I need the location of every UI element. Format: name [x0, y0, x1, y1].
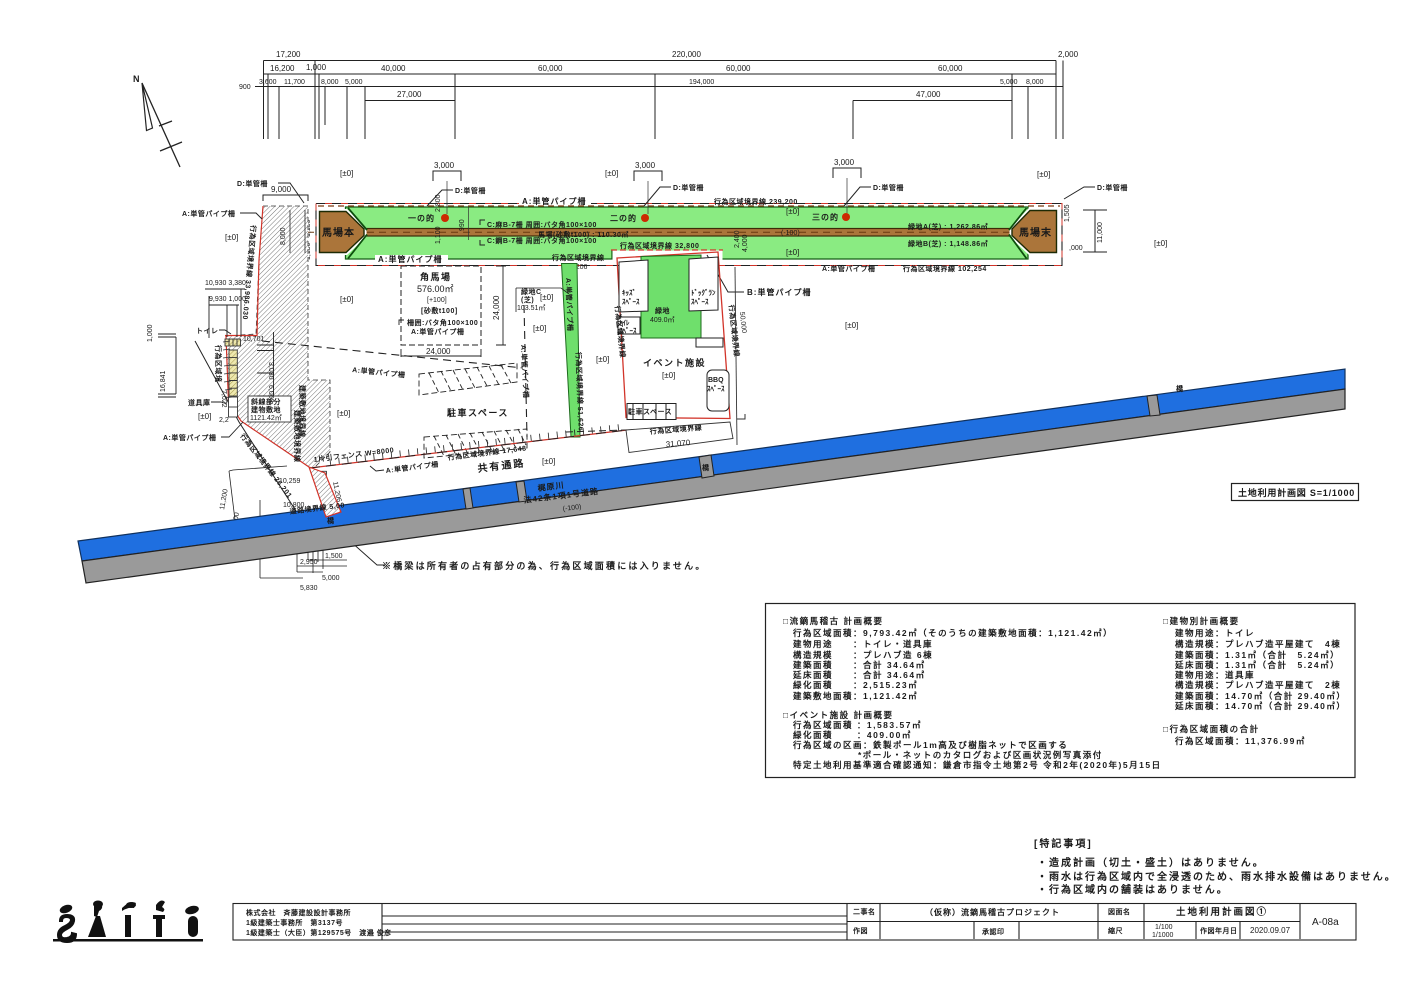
svg-text:[±0]: [±0]	[540, 293, 553, 302]
svg-text:[+100]: [+100]	[427, 297, 447, 304]
svg-text:[特記事項]: [特記事項]	[1034, 837, 1093, 850]
svg-text:□建物別計画概要: □建物別計画概要	[1163, 616, 1240, 626]
svg-text:BBQ: BBQ	[708, 377, 724, 384]
svg-text:A-08a: A-08a	[1312, 917, 1339, 928]
svg-text:[砂敷t100]: [砂敷t100]	[421, 306, 458, 315]
svg-text:9,930 1,000: 9,930 1,000	[209, 296, 246, 303]
svg-text:土地利用計画図①: 土地利用計画図①	[1176, 906, 1268, 918]
svg-text:16,841: 16,841	[160, 370, 167, 392]
svg-text:建物用途：道具庫: 建物用途：道具庫	[1174, 670, 1255, 680]
svg-text:ﾄﾞｯｸﾞﾗﾝ: ﾄﾞｯｸﾞﾗﾝ	[691, 288, 716, 297]
svg-text:（仮称）流鏑馬稽古プロジェクト: （仮称）流鏑馬稽古プロジェクト	[925, 907, 1060, 917]
svg-text:馬場本: 馬場本	[322, 226, 355, 239]
svg-text:行為区域境界線 102,254: 行為区域境界線 102,254	[902, 264, 987, 273]
svg-text:900: 900	[239, 84, 251, 91]
svg-text:60,000: 60,000	[938, 64, 963, 73]
svg-text:・行為区域内の舗装はありません。: ・行為区域内の舗装はありません。	[1037, 883, 1229, 896]
svg-text:橋: 橋	[327, 516, 335, 525]
svg-text:D:単管柵: D:単管柵	[1097, 183, 1128, 192]
svg-text:緑地B(芝) : 1,148.86㎡: 緑地B(芝) : 1,148.86㎡	[908, 239, 988, 248]
svg-text:建築面積 ：合計 34.64㎡: 建築面積 ：合計 34.64㎡	[792, 660, 926, 670]
svg-text:柵囲:バタ角100×100: 柵囲:バタ角100×100	[407, 318, 478, 327]
svg-text:2,400: 2,400	[734, 230, 741, 248]
svg-text:A:単管パイプ柵: A:単管パイプ柵	[522, 196, 586, 206]
svg-text:イベント施設: イベント施設	[643, 357, 706, 368]
svg-text:建物用途 ：トイレ・道具庫: 建物用途 ：トイレ・道具庫	[792, 639, 933, 649]
svg-text:2,000: 2,000	[1058, 50, 1079, 59]
svg-text:,000: ,000	[1069, 245, 1083, 252]
svg-text:8,000: 8,000	[321, 79, 339, 86]
svg-text:D:単管柵: D:単管柵	[873, 183, 904, 192]
svg-text:駐車スペース: 駐車スペース	[628, 407, 672, 416]
svg-text:409.0㎡: 409.0㎡	[650, 316, 675, 324]
svg-text:[±0]: [±0]	[225, 233, 238, 242]
svg-text:橋: 橋	[702, 463, 710, 472]
svg-text:延床面積 ：合計 34.64㎡: 延床面積 ：合計 34.64㎡	[792, 670, 926, 680]
svg-text:建築敷地境界線: 建築敷地境界線	[293, 410, 302, 463]
svg-text:[±0]: [±0]	[542, 457, 555, 466]
svg-text:[±0]: [±0]	[1154, 239, 1167, 248]
svg-text:*ポール・ネットのカタログおよび区画状況例写真添付: *ポール・ネットのカタログおよび区画状況例写真添付	[858, 750, 1103, 760]
svg-text:□行為区域面積の合計: □行為区域面積の合計	[1163, 724, 1260, 734]
svg-text:橋: 橋	[1176, 384, 1184, 393]
svg-text:行為区域境: 行為区域境	[214, 344, 223, 383]
svg-text:3,000: 3,000	[834, 158, 855, 167]
svg-text:8,000: 8,000	[1026, 79, 1044, 86]
svg-text:3,600: 3,600	[259, 79, 277, 86]
svg-text:[±0]: [±0]	[340, 169, 353, 178]
svg-text:5,000: 5,000	[345, 79, 363, 86]
svg-text:C:麻B-7柵 周囲:バタ角100×100: C:麻B-7柵 周囲:バタ角100×100	[487, 220, 597, 229]
svg-text:1/1000: 1/1000	[1152, 932, 1174, 939]
svg-text:一の的: 一の的	[408, 213, 435, 223]
svg-text:建物用途：トイレ: 建物用途：トイレ	[1174, 628, 1255, 638]
svg-text:承認印: 承認印	[982, 927, 1005, 936]
svg-text:C:鋼B-7柵 周囲:バタ角100×100: C:鋼B-7柵 周囲:バタ角100×100	[487, 236, 597, 245]
svg-text:延床面積：14.70㎡（合計 29.40㎡）: 延床面積：14.70㎡（合計 29.40㎡）	[1174, 701, 1346, 711]
svg-text:行為区域境界線 239,200: 行為区域境界線 239,200	[713, 197, 798, 206]
svg-text:行為区域境界線: 行為区域境界線	[551, 253, 605, 262]
svg-text:ｽﾍﾟｰｽ: ｽﾍﾟｰｽ	[691, 297, 709, 306]
svg-text:60,000: 60,000	[726, 64, 751, 73]
svg-text:建築敷地面積：1,121.42㎡: 建築敷地面積：1,121.42㎡	[792, 691, 918, 701]
svg-text:N: N	[133, 74, 140, 84]
svg-text:5,000: 5,000	[322, 575, 340, 582]
svg-text:A:単管パイプ柵: A:単管パイプ柵	[163, 433, 216, 442]
svg-text:27,000: 27,000	[397, 90, 422, 99]
svg-text:5,830: 5,830	[300, 585, 318, 592]
svg-text:D:単管柵: D:単管柵	[673, 183, 704, 192]
svg-text:8,000: 8,000	[280, 227, 287, 245]
svg-text:1/100: 1/100	[1155, 924, 1173, 931]
svg-text:[±0]: [±0]	[786, 248, 799, 257]
svg-text:二の的: 二の的	[610, 213, 637, 223]
svg-text:ｷｯｽﾞ: ｷｯｽﾞ	[622, 288, 636, 297]
svg-text:7,022: 7,022	[220, 390, 227, 408]
svg-text:[±0]: [±0]	[1037, 170, 1050, 179]
svg-text:[±0]: [±0]	[605, 169, 618, 178]
svg-text:11,000: 11,000	[1097, 222, 1104, 243]
svg-text:40,000: 40,000	[381, 64, 406, 73]
svg-text:図面名: 図面名	[1108, 907, 1131, 916]
svg-text:194,000: 194,000	[689, 79, 714, 86]
svg-text:1121.42㎡: 1121.42㎡	[250, 414, 282, 422]
svg-text:D:単管柵: D:単管柵	[237, 179, 268, 188]
svg-text:1,505: 1,505	[1064, 204, 1071, 222]
svg-text:ｽﾍﾟｰｽ: ｽﾍﾟｰｽ	[622, 297, 640, 306]
svg-text:6,063: 6,063	[267, 385, 274, 403]
svg-text:D:単管柵: D:単管柵	[455, 186, 486, 195]
svg-text:1,000: 1,000	[147, 324, 154, 342]
svg-text:1,100: 1,100	[435, 226, 442, 244]
svg-text:10,701: 10,701	[243, 336, 265, 343]
svg-text:建築面積：1.31㎡（合計 5.24㎡）: 建築面積：1.31㎡（合計 5.24㎡）	[1174, 650, 1340, 660]
svg-text:2020.09.07: 2020.09.07	[1250, 926, 1291, 935]
svg-text:2,2: 2,2	[219, 417, 229, 424]
svg-text:[±0]: [±0]	[845, 321, 858, 330]
svg-text:ｽﾍﾟｰｽ: ｽﾍﾟｰｽ	[707, 384, 725, 393]
svg-text:60,000: 60,000	[538, 64, 563, 73]
svg-text:行為区域面積：11,376.99㎡: 行為区域面積：11,376.99㎡	[1174, 736, 1306, 746]
svg-text:3,000: 3,000	[635, 161, 656, 170]
svg-text:緑化面積 ：2,515.23㎡: 緑化面積 ：2,515.23㎡	[793, 680, 918, 690]
svg-text:トイレ: トイレ	[196, 327, 219, 335]
svg-text:[±0]: [±0]	[533, 324, 546, 333]
svg-text:作図年月日: 作図年月日	[1200, 926, 1238, 935]
svg-text:建築面積：14.70㎡（合計 29.40㎡）: 建築面積：14.70㎡（合計 29.40㎡）	[1174, 691, 1346, 701]
svg-text:B:単管パイプ柵: B:単管パイプ柵	[747, 287, 811, 297]
svg-text:(-100): (-100)	[781, 230, 800, 237]
svg-text:緑化面積 ：409.00㎡: 緑化面積 ：409.00㎡	[793, 730, 912, 740]
svg-text:990: 990	[459, 219, 466, 231]
svg-text:4,000: 4,000	[742, 234, 749, 252]
svg-text:二事名: 二事名	[853, 907, 876, 916]
svg-text:(芝): (芝)	[521, 295, 534, 304]
svg-text:三の的: 三の的	[812, 212, 839, 222]
svg-text:220,000: 220,000	[672, 50, 701, 59]
svg-text:馬場末: 馬場末	[1019, 226, 1052, 239]
svg-text:行為区域面積：9,793.42㎡（そのうちの建築敷地面積：1: 行為区域面積：9,793.42㎡（そのうちの建築敷地面積：1,121.42㎡）	[792, 628, 1113, 638]
svg-text:道具庫: 道具庫	[188, 398, 211, 407]
svg-text:[±0]: [±0]	[662, 371, 675, 380]
svg-text:1級建築士事務所 第3137号: 1級建築士事務所 第3137号	[246, 918, 343, 927]
svg-text:※橋梁は所有者の占有部分の為、行為区域面積には入りません。: ※橋梁は所有者の占有部分の為、行為区域面積には入りません。	[382, 560, 707, 571]
svg-text:斜線部分: 斜線部分	[250, 397, 281, 406]
svg-text:株式会社 斉藤建設設計事務所: 株式会社 斉藤建設設計事務所	[246, 908, 351, 917]
svg-text:・造成計画（切土・盛土）はありません。: ・造成計画（切土・盛土）はありません。	[1037, 856, 1265, 869]
svg-text:特定土地利用基準適合確認通知：鎌倉市指令土地第2号 令和2年: 特定土地利用基準適合確認通知：鎌倉市指令土地第2号 令和2年(2020年)5月1…	[793, 760, 1162, 770]
svg-text:行為区域境界線 32,800: 行為区域境界線 32,800	[619, 241, 699, 250]
svg-text:3,030: 3,030	[267, 362, 274, 380]
svg-text:緑地A(芝) : 1,262.86㎡: 緑地A(芝) : 1,262.86㎡	[908, 222, 988, 231]
svg-text:・雨水は行為区域内で全浸透のため、雨水排水設備はありません。: ・雨水は行為区域内で全浸透のため、雨水排水設備はありません。	[1037, 870, 1397, 883]
svg-text:10,259: 10,259	[279, 478, 301, 485]
svg-text:A:単管パイプ柵: A:単管パイプ柵	[822, 264, 875, 273]
svg-text:構造規模 ：プレハブ造 6棟: 構造規模 ：プレハブ造 6棟	[793, 650, 933, 660]
svg-text:[±0]: [±0]	[596, 355, 609, 364]
svg-text:建物敷地: 建物敷地	[251, 405, 281, 414]
svg-text:5,000: 5,000	[1000, 79, 1018, 86]
svg-text:行為区域面積 ：1,583.57㎡: 行為区域面積 ：1,583.57㎡	[792, 720, 922, 730]
svg-text:A:単管パイプ柵: A:単管パイプ柵	[182, 209, 235, 218]
svg-text:[±0]: [±0]	[337, 409, 350, 418]
svg-text:1,000: 1,000	[306, 63, 327, 72]
svg-text:□イベント施設 計画概要: □イベント施設 計画概要	[783, 710, 894, 720]
svg-text:17,200: 17,200	[276, 50, 301, 59]
svg-text:11,700: 11,700	[284, 79, 305, 86]
svg-text:576.00㎡: 576.00㎡	[417, 284, 454, 294]
svg-text:103.51㎡: 103.51㎡	[517, 304, 545, 312]
svg-text:3,000: 3,000	[434, 161, 455, 170]
svg-text:A:単管パイプ柵: A:単管パイプ柵	[411, 327, 464, 336]
svg-text:16,200: 16,200	[270, 64, 295, 73]
svg-text:縮尺: 縮尺	[1108, 926, 1123, 935]
svg-text:1級建築士（大臣）第129575号 渡邉 俊彦: 1級建築士（大臣）第129575号 渡邉 俊彦	[246, 928, 392, 937]
svg-text:1,500: 1,500	[325, 553, 343, 560]
svg-text:構造規模：プレハブ造平屋建て 4棟: 構造規模：プレハブ造平屋建て 4棟	[1175, 639, 1341, 649]
svg-text:構造規模：プレハブ造平屋建て 2棟: 構造規模：プレハブ造平屋建て 2棟	[1175, 680, 1341, 690]
svg-text:47,000: 47,000	[916, 90, 941, 99]
svg-text:緑地: 緑地	[655, 306, 670, 315]
svg-text:[±0]: [±0]	[198, 412, 211, 421]
svg-text:[±0]: [±0]	[786, 207, 799, 216]
svg-text:行為区域の区画：鉄製ポール1m高及び樹脂ネットで区画する: 行為区域の区画：鉄製ポール1m高及び樹脂ネットで区画する	[792, 740, 1068, 750]
svg-text:[±0]: [±0]	[340, 295, 353, 304]
svg-text:10,930 3,380: 10,930 3,380	[205, 280, 246, 287]
svg-text:A:単管パイプ柵: A:単管パイプ柵	[378, 254, 442, 264]
svg-text:24,000: 24,000	[492, 295, 501, 320]
svg-text:2,800: 2,800	[435, 194, 442, 212]
svg-text:2,950: 2,950	[300, 559, 318, 566]
svg-text:延床面積：1.31㎡（合計 5.24㎡）: 延床面積：1.31㎡（合計 5.24㎡）	[1174, 660, 1340, 670]
svg-text:24,000: 24,000	[426, 347, 451, 356]
svg-text:角馬場: 角馬場	[420, 271, 452, 282]
svg-text:□流鏑馬稽古 計画概要: □流鏑馬稽古 計画概要	[783, 616, 884, 626]
svg-text:作図: 作図	[853, 926, 868, 935]
svg-text:9,000: 9,000	[271, 185, 292, 194]
svg-text:土地利用計画図 S=1/1000: 土地利用計画図 S=1/1000	[1238, 487, 1355, 498]
svg-text:駐車スペース: 駐車スペース	[447, 407, 509, 418]
